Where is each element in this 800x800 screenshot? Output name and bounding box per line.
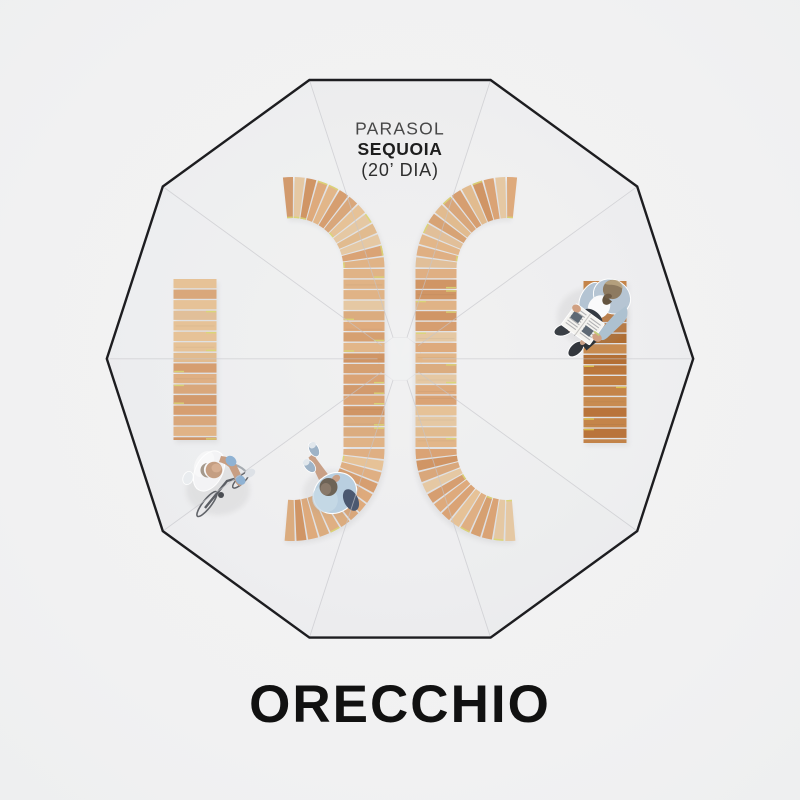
svg-text:SEQUOIA: SEQUOIA <box>358 139 443 159</box>
svg-text:PARASOL: PARASOL <box>355 119 445 139</box>
svg-text:ORECCHIO: ORECCHIO <box>249 675 551 734</box>
svg-text:(20’ DIA): (20’ DIA) <box>361 160 439 180</box>
